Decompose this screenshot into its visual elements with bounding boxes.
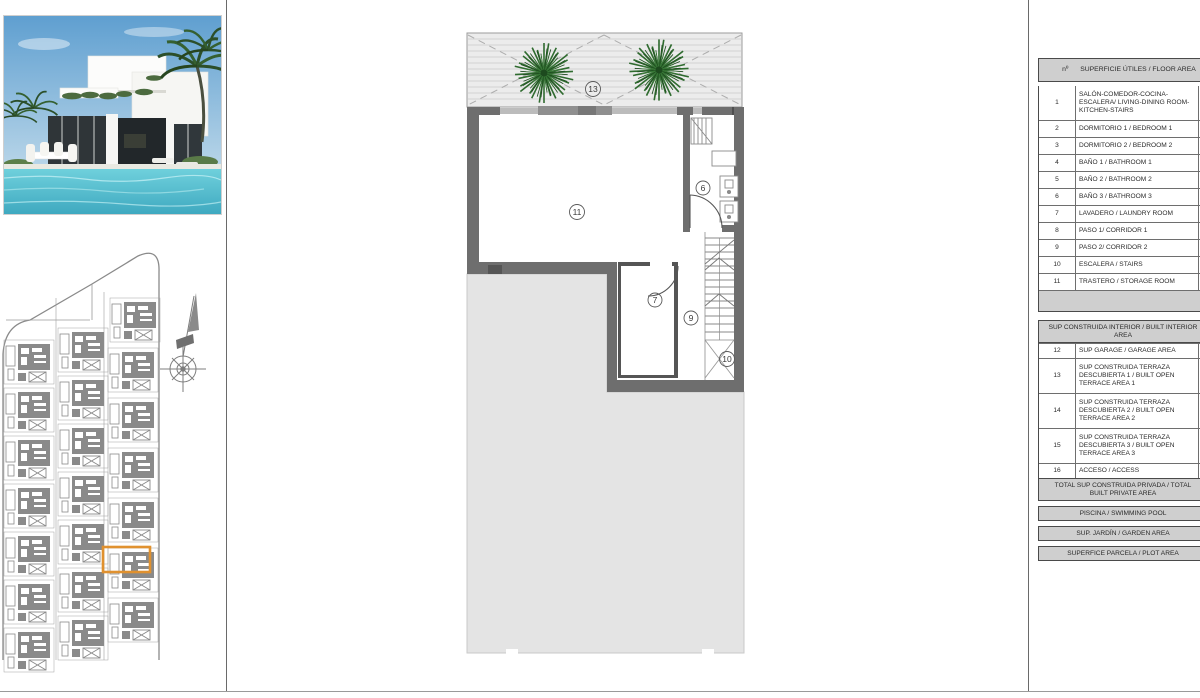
table-row: 6 BAÑO 3 / BATHROOM 3 bbox=[1039, 188, 1200, 205]
area-table: nº SUPERFICIE ÚTILES / FLOOR AREA 1 SALÓ… bbox=[1038, 58, 1200, 561]
row-number: 9 bbox=[1039, 240, 1076, 256]
row-label: SUP CONSTRUIDA TERRAZA DESCUBIERTA 1 / B… bbox=[1076, 359, 1198, 393]
floor-area-rows: 1 SALÓN-COMEDOR-COCINA-ESCALERA/ LIVING-… bbox=[1038, 86, 1200, 312]
door-arc bbox=[648, 266, 678, 296]
garden-area bbox=[467, 274, 744, 653]
table-row: 12 SUP GARAGE / GARAGE AREA bbox=[1039, 343, 1200, 358]
door-arc bbox=[690, 195, 722, 228]
row-number: 3 bbox=[1039, 138, 1076, 154]
svg-text:6: 6 bbox=[701, 183, 706, 193]
subtotal-band bbox=[1039, 290, 1200, 311]
pool-band: PISCINA / SWIMMING POOL bbox=[1038, 506, 1200, 521]
row-label: SUP CONSTRUIDA TERRAZA DESCUBIERTA 2 / B… bbox=[1076, 394, 1198, 428]
row-label: SUP CONSTRUIDA TERRAZA DESCUBIERTA 3 / B… bbox=[1076, 429, 1198, 463]
row-label: ESCALERA / STAIRS bbox=[1076, 257, 1198, 273]
table-row: 2 DORMITORIO 1 / BEDROOM 1 bbox=[1039, 120, 1200, 137]
row-label: SALÓN-COMEDOR-COCINA-ESCALERA/ LIVING-DI… bbox=[1076, 86, 1198, 120]
svg-text:11: 11 bbox=[573, 207, 582, 217]
site-plan bbox=[0, 236, 226, 692]
label-stairs: 10 bbox=[720, 352, 735, 367]
header-num: nº bbox=[1050, 66, 1080, 74]
sheet-frame-left bbox=[226, 0, 227, 691]
row-label: BAÑO 3 / BATHROOM 3 bbox=[1076, 189, 1198, 205]
terrace-area bbox=[467, 33, 742, 107]
table-row: 13 SUP CONSTRUIDA TERRAZA DESCUBIERTA 1 … bbox=[1039, 358, 1200, 393]
svg-text:10: 10 bbox=[722, 354, 732, 364]
total-band: TOTAL SUP CONSTRUIDA PRIVADA / TOTAL BUI… bbox=[1039, 478, 1200, 500]
row-label: PASO 1/ CORRIDOR 1 bbox=[1076, 223, 1198, 239]
label-corridor: 9 bbox=[684, 311, 698, 325]
row-number: 16 bbox=[1039, 464, 1076, 478]
table-row: 3 DORMITORIO 2 / BEDROOM 2 bbox=[1039, 137, 1200, 154]
table-row: 7 LAVADERO / LAUNDRY ROOM bbox=[1039, 205, 1200, 222]
row-number: 13 bbox=[1039, 359, 1076, 393]
row-number: 8 bbox=[1039, 223, 1076, 239]
swimming-pool bbox=[4, 164, 221, 214]
site-houses bbox=[4, 298, 160, 672]
svg-text:9: 9 bbox=[689, 313, 694, 323]
table-row: 10 ESCALERA / STAIRS bbox=[1039, 256, 1200, 273]
table-row: 8 PASO 1/ CORRIDOR 1 bbox=[1039, 222, 1200, 239]
table-row: 14 SUP CONSTRUIDA TERRAZA DESCUBIERTA 2 … bbox=[1039, 393, 1200, 428]
table-row: 4 BAÑO 1 / BATHROOM 1 bbox=[1039, 154, 1200, 171]
row-label: ACCESO / ACCESS bbox=[1076, 464, 1198, 478]
row-label: LAVADERO / LAUNDRY ROOM bbox=[1076, 206, 1198, 222]
table-row: 5 BAÑO 2 / BATHROOM 2 bbox=[1039, 171, 1200, 188]
garden-band: SUP. JARDÍN / GARDEN AREA bbox=[1038, 526, 1200, 541]
row-number: 7 bbox=[1039, 206, 1076, 222]
label-bathroom: 6 bbox=[696, 181, 710, 195]
row-number: 12 bbox=[1039, 344, 1076, 358]
label-terrace: 13 bbox=[586, 82, 601, 97]
villa-photo bbox=[3, 15, 222, 215]
north-arrow-icon bbox=[160, 293, 206, 392]
row-number: 2 bbox=[1039, 121, 1076, 137]
row-label: SUP GARAGE / GARAGE AREA bbox=[1076, 344, 1198, 358]
row-label: BAÑO 1 / BATHROOM 1 bbox=[1076, 155, 1198, 171]
row-label: BAÑO 2 / BATHROOM 2 bbox=[1076, 172, 1198, 188]
table-row: 15 SUP CONSTRUIDA TERRAZA DESCUBIERTA 3 … bbox=[1039, 428, 1200, 463]
plot-band: SUPERFICE PARCELA / PLOT AREA bbox=[1038, 546, 1200, 561]
row-number: 6 bbox=[1039, 189, 1076, 205]
row-number: 14 bbox=[1039, 394, 1076, 428]
table-row: 16 ACCESO / ACCESS bbox=[1039, 463, 1200, 478]
row-number: 15 bbox=[1039, 429, 1076, 463]
table-row: 9 PASO 2/ CORRIDOR 2 bbox=[1039, 239, 1200, 256]
floor-plan: 13 11 6 7 9 10 bbox=[440, 18, 760, 668]
table-header: nº SUPERFICIE ÚTILES / FLOOR AREA bbox=[1038, 58, 1200, 82]
sheet-frame-right bbox=[1028, 0, 1029, 691]
label-storage: 11 bbox=[570, 205, 585, 220]
row-label: DORMITORIO 2 / BEDROOM 2 bbox=[1076, 138, 1198, 154]
row-label: PASO 2/ CORRIDOR 2 bbox=[1076, 240, 1198, 256]
row-number: 10 bbox=[1039, 257, 1076, 273]
svg-text:13: 13 bbox=[588, 84, 598, 94]
row-label: DORMITORIO 1 / BEDROOM 1 bbox=[1076, 121, 1198, 137]
svg-text:7: 7 bbox=[653, 295, 658, 305]
row-number: 4 bbox=[1039, 155, 1076, 171]
built-section-title: SUP CONSTRUIDA INTERIOR / BUILT INTERIOR… bbox=[1039, 321, 1200, 343]
row-number: 1 bbox=[1039, 86, 1076, 120]
row-label: TRASTERO / STORAGE ROOM bbox=[1076, 274, 1198, 290]
sheet-frame-bottom bbox=[0, 691, 1200, 692]
row-number: 5 bbox=[1039, 172, 1076, 188]
laundry-room bbox=[618, 262, 678, 378]
table-row: 1 SALÓN-COMEDOR-COCINA-ESCALERA/ LIVING-… bbox=[1039, 86, 1200, 120]
row-number: 11 bbox=[1039, 274, 1076, 290]
table-row: 11 TRASTERO / STORAGE ROOM bbox=[1039, 273, 1200, 290]
header-label: SUPERFICIE ÚTILES / FLOOR AREA bbox=[1080, 66, 1196, 74]
built-area-rows: SUP CONSTRUIDA INTERIOR / BUILT INTERIOR… bbox=[1038, 320, 1200, 501]
label-laundry: 7 bbox=[648, 293, 662, 307]
